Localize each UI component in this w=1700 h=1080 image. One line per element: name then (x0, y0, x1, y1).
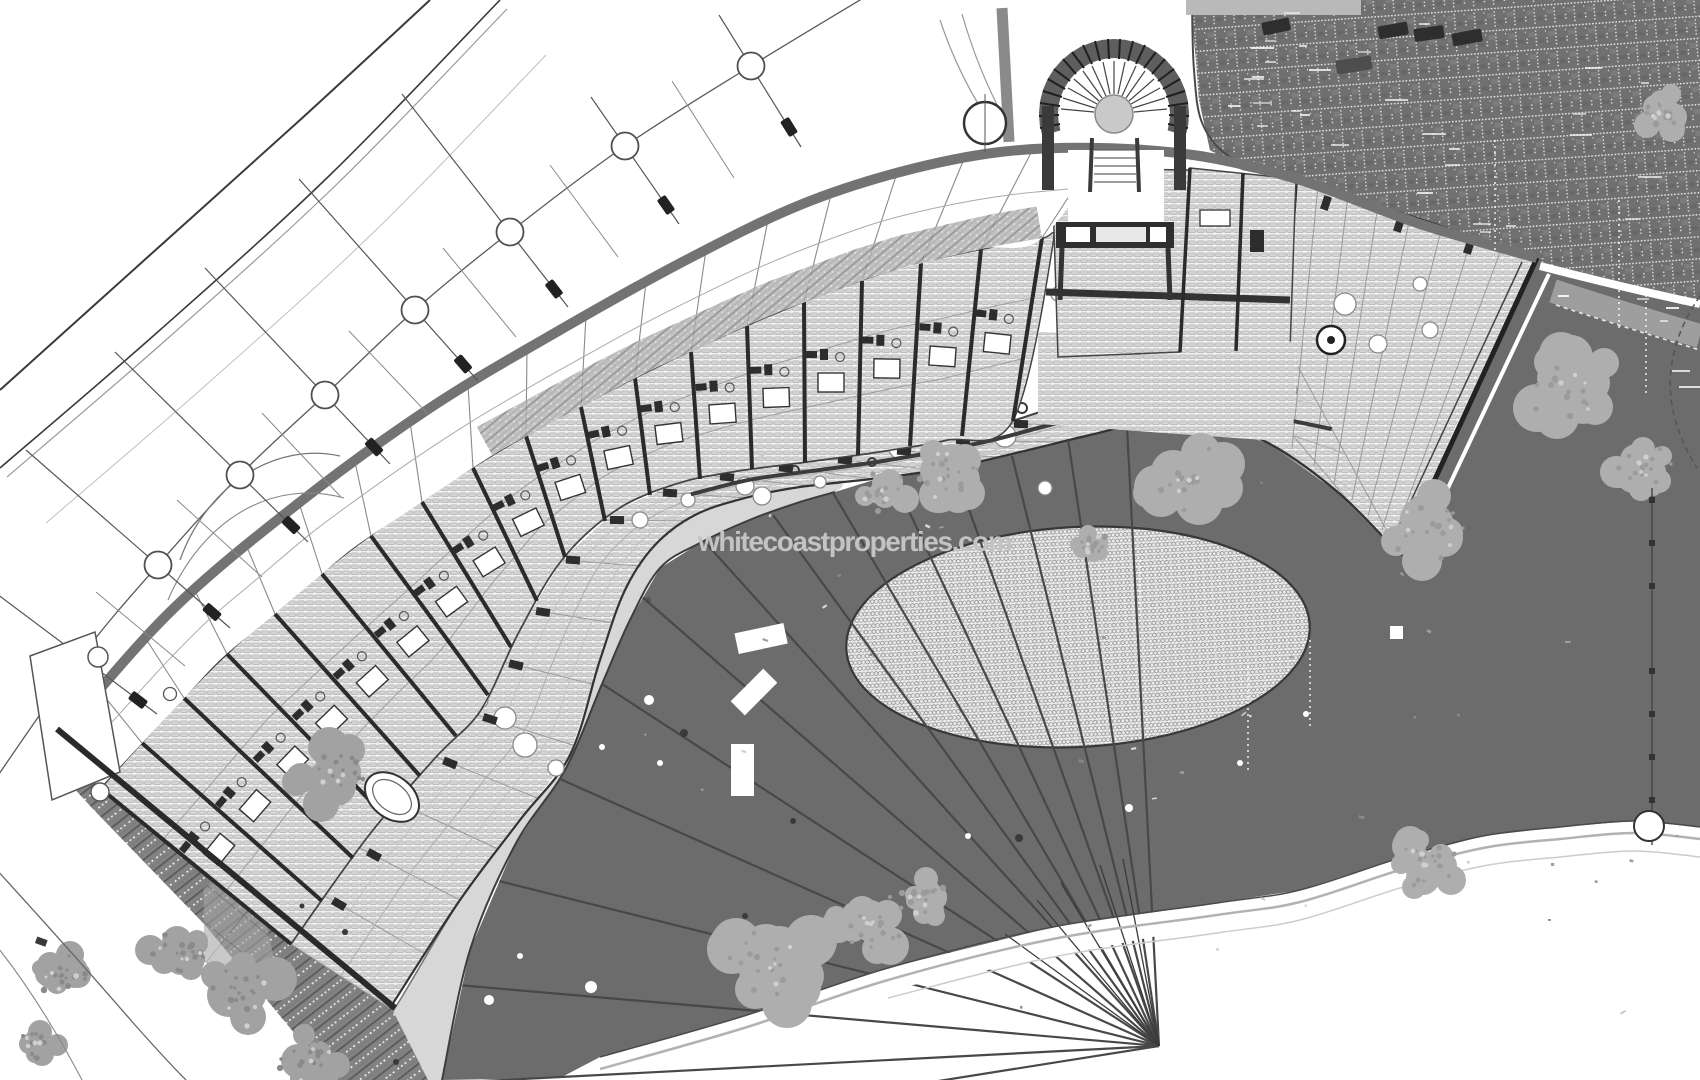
svg-text:whitecoastproperties.com: whitecoastproperties.com (697, 526, 1012, 557)
